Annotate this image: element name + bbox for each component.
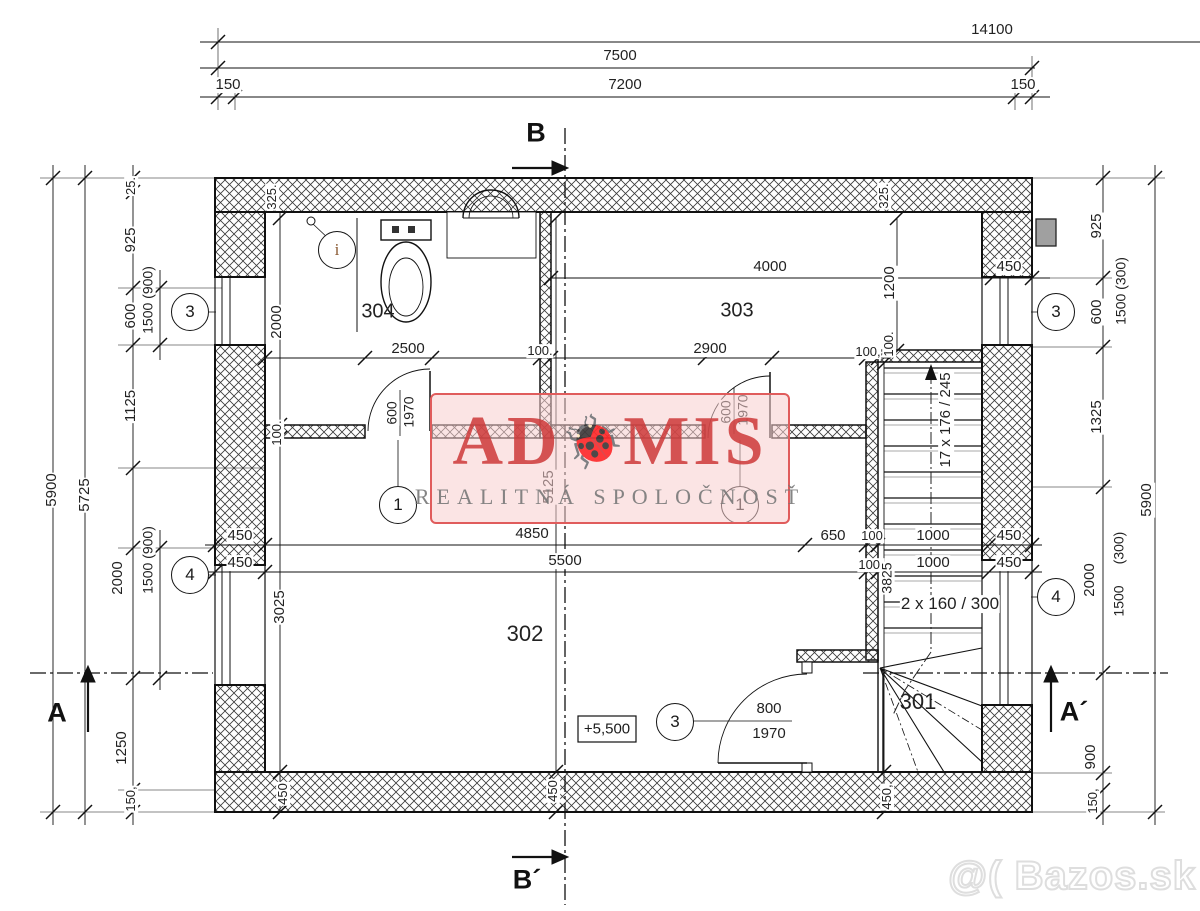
site-watermark: @( Bazos.sk	[948, 854, 1196, 899]
agency-watermark: AD 🐞 MIS REALITNÁ SPOLOČNOSŤ	[430, 393, 790, 524]
agency-logo: AD 🐞 MIS	[452, 407, 767, 477]
plumbing-duct	[307, 217, 357, 332]
walk-line-arrow-icon	[925, 364, 937, 380]
stair-tread-edges	[884, 373, 982, 633]
floor-plan-page: { "watermark": { "brand_prefix": "AD", "…	[0, 0, 1200, 911]
chimney-block	[1036, 219, 1056, 246]
door-jambs	[802, 662, 812, 772]
agency-logo-suffix: MIS	[623, 407, 767, 477]
stair-winder	[878, 648, 982, 772]
ladybug-icon: 🐞	[557, 410, 629, 474]
level-marker: +5,500	[584, 721, 630, 738]
agency-subtitle: REALITNÁ SPOLOČNOSŤ	[415, 484, 805, 510]
stair-treads	[884, 368, 982, 628]
toilet	[381, 220, 431, 322]
stair-walk-line	[893, 364, 937, 715]
agency-logo-prefix: AD	[452, 407, 561, 477]
